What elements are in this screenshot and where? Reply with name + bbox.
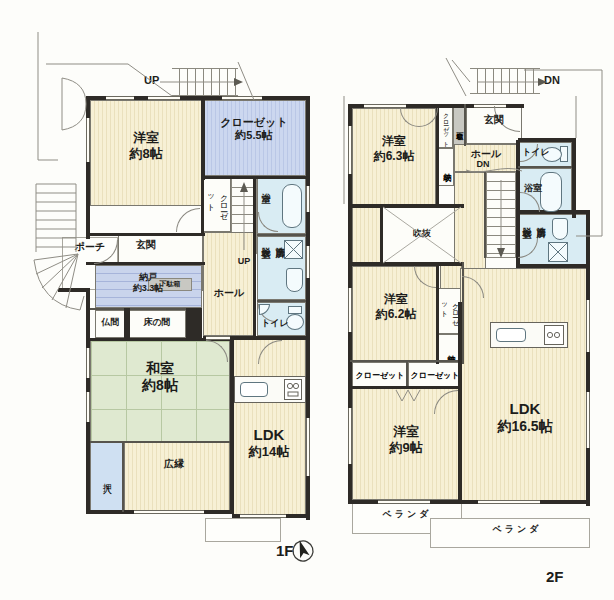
- senmen-label-2f: 洗面所: [534, 220, 547, 223]
- window: [148, 96, 180, 100]
- wall-segment: [90, 441, 230, 443]
- stairs-dn-outside-label: DN: [544, 74, 560, 87]
- room-label-butsuma: 仏間: [95, 317, 126, 328]
- window: [586, 300, 590, 352]
- datsui-label-1f: 脱衣室: [259, 240, 272, 243]
- room-label-western-9: 洋室約9帖: [356, 424, 456, 456]
- wall-segment: [58, 288, 90, 292]
- room-oshiire: 押入: [90, 442, 124, 512]
- datsui-label-2f: 脱衣室: [520, 220, 533, 223]
- room-label-bath-2f: 浴室: [518, 183, 548, 194]
- room-label-washroom-1f: 脱衣室 洗面所: [259, 240, 286, 243]
- window: [348, 408, 352, 464]
- wall-segment: [572, 138, 576, 218]
- room-label-western-8: 洋室約8帖: [91, 130, 201, 162]
- room-label-washitsu: 和室約8帖: [100, 360, 220, 394]
- room-label-porch: ポーチ: [64, 241, 116, 253]
- window: [348, 126, 352, 174]
- wall-segment: [484, 172, 486, 258]
- window: [86, 348, 90, 378]
- stairs-dn-inside-label: DN: [468, 159, 498, 170]
- window: [134, 510, 204, 514]
- room-label-ldk-2f: LDK約16.5帖: [465, 400, 585, 435]
- window: [86, 392, 90, 422]
- window: [106, 96, 134, 100]
- room-label-western-6-2: 洋室約6.2帖: [354, 292, 438, 321]
- stairs-up-inside-label: UP: [231, 256, 257, 267]
- wall-segment: [86, 262, 205, 265]
- wall-segment: [380, 204, 383, 266]
- stove-icon: [544, 325, 564, 345]
- wall-segment: [516, 264, 590, 268]
- landing-nook-2f: [352, 206, 382, 264]
- x-mark-icon: [549, 243, 567, 261]
- wall-segment: [201, 180, 204, 235]
- washing-machine-icon: [284, 240, 303, 259]
- room-label-nando: 納戸約3.3帖: [98, 272, 198, 294]
- corridor-2f-branch: [440, 264, 462, 290]
- window: [306, 418, 310, 476]
- window: [378, 500, 430, 504]
- staircase-dn-2f: [486, 172, 516, 258]
- kitchen-sink-icon: [240, 382, 268, 397]
- wall-segment: [350, 386, 462, 389]
- wall-segment: [518, 166, 572, 168]
- room-hiroen: [124, 442, 230, 512]
- window: [478, 500, 540, 504]
- veranda-b-label: ベランダ: [482, 524, 552, 535]
- kitchen-sink-icon: [496, 328, 526, 342]
- closet-a-label: クローゼット: [356, 370, 405, 381]
- room-storage-entry-2f: 収納: [438, 148, 454, 186]
- room-label-hiroen: 広縁: [144, 458, 204, 470]
- room-label-western-6-3: 洋室約6.3帖: [354, 134, 434, 163]
- room-label-washroom-2f: 脱衣室 洗面所: [520, 220, 547, 223]
- room-label-tokonoma: 床の間: [128, 317, 186, 328]
- room-closet-a: クローゼット: [352, 362, 408, 388]
- room-closet-entry-2f: クローゼット: [438, 104, 453, 148]
- compass-icon: [290, 537, 316, 563]
- wall-segment: [186, 308, 202, 340]
- exterior-stairs-up-1f: [172, 68, 238, 96]
- wall-segment: [458, 302, 462, 500]
- door-arc: [176, 208, 200, 232]
- room-closet-side-1f: クローゼット: [203, 178, 231, 232]
- wall-segment: [257, 300, 306, 302]
- wall-segment: [464, 104, 466, 146]
- stove-icon: [284, 379, 302, 400]
- room-label-closet-5-5: クローゼット約5.5帖: [204, 116, 304, 143]
- window: [306, 246, 310, 278]
- washing-machine-icon: [548, 242, 568, 262]
- veranda-a-label: ベランダ: [372, 509, 442, 520]
- wall-segment: [348, 262, 464, 266]
- senmen-label-1f: 洗面所: [273, 240, 286, 243]
- wall-segment: [86, 233, 205, 236]
- wall-segment: [257, 234, 306, 236]
- closet-entry-label-2f: クローゼット: [441, 109, 450, 143]
- closet-side-label-1f: クローゼット: [204, 189, 230, 221]
- toilet-tank-icon: [288, 306, 302, 314]
- stairs-up-outside-label: UP: [144, 74, 159, 87]
- sink-icon: [286, 268, 303, 292]
- sink-icon: [552, 218, 568, 240]
- terrace-outline-1f: [205, 518, 281, 542]
- window: [222, 96, 262, 100]
- wall-segment: [122, 442, 124, 512]
- wall-segment: [348, 204, 464, 208]
- closet-b-label: クローゼット: [411, 370, 460, 381]
- floor-plan-canvas: クローゼット 押入: [0, 0, 614, 600]
- room-ldk-2f: [460, 268, 590, 502]
- room-label-bath-1f: 浴室: [260, 186, 271, 188]
- room-label-genkan-1f: 玄関: [124, 239, 168, 251]
- room-label-ldk-1f: LDK約14帖: [234, 426, 304, 460]
- room-label-genkan-2f: 玄関: [472, 114, 516, 126]
- floor-label-1f: 1F: [276, 542, 294, 560]
- window: [348, 288, 352, 332]
- room-closet-b: クローゼット: [408, 362, 462, 388]
- room-label-hall-1f: ホール: [204, 287, 254, 299]
- window: [240, 514, 286, 518]
- wall-segment: [586, 214, 590, 506]
- bathtub-icon: [282, 184, 302, 228]
- exterior-stairs-dn-2f: [470, 68, 540, 94]
- wall-segment: [436, 104, 439, 208]
- room-label-fukinuke: 吹抜: [392, 228, 452, 239]
- wall-segment: [518, 138, 576, 142]
- wall-segment: [406, 362, 408, 386]
- room-hall-1f: [203, 232, 255, 336]
- room-label-toilet-1f: トイレ: [255, 318, 295, 329]
- oshiire-label: 押入: [101, 476, 114, 478]
- floor-label-2f: 2F: [546, 568, 564, 586]
- x-mark-icon: [285, 241, 302, 258]
- room-label-toilet-2f: トイレ: [518, 147, 554, 158]
- window: [86, 118, 90, 162]
- window: [586, 392, 590, 448]
- window: [306, 186, 310, 212]
